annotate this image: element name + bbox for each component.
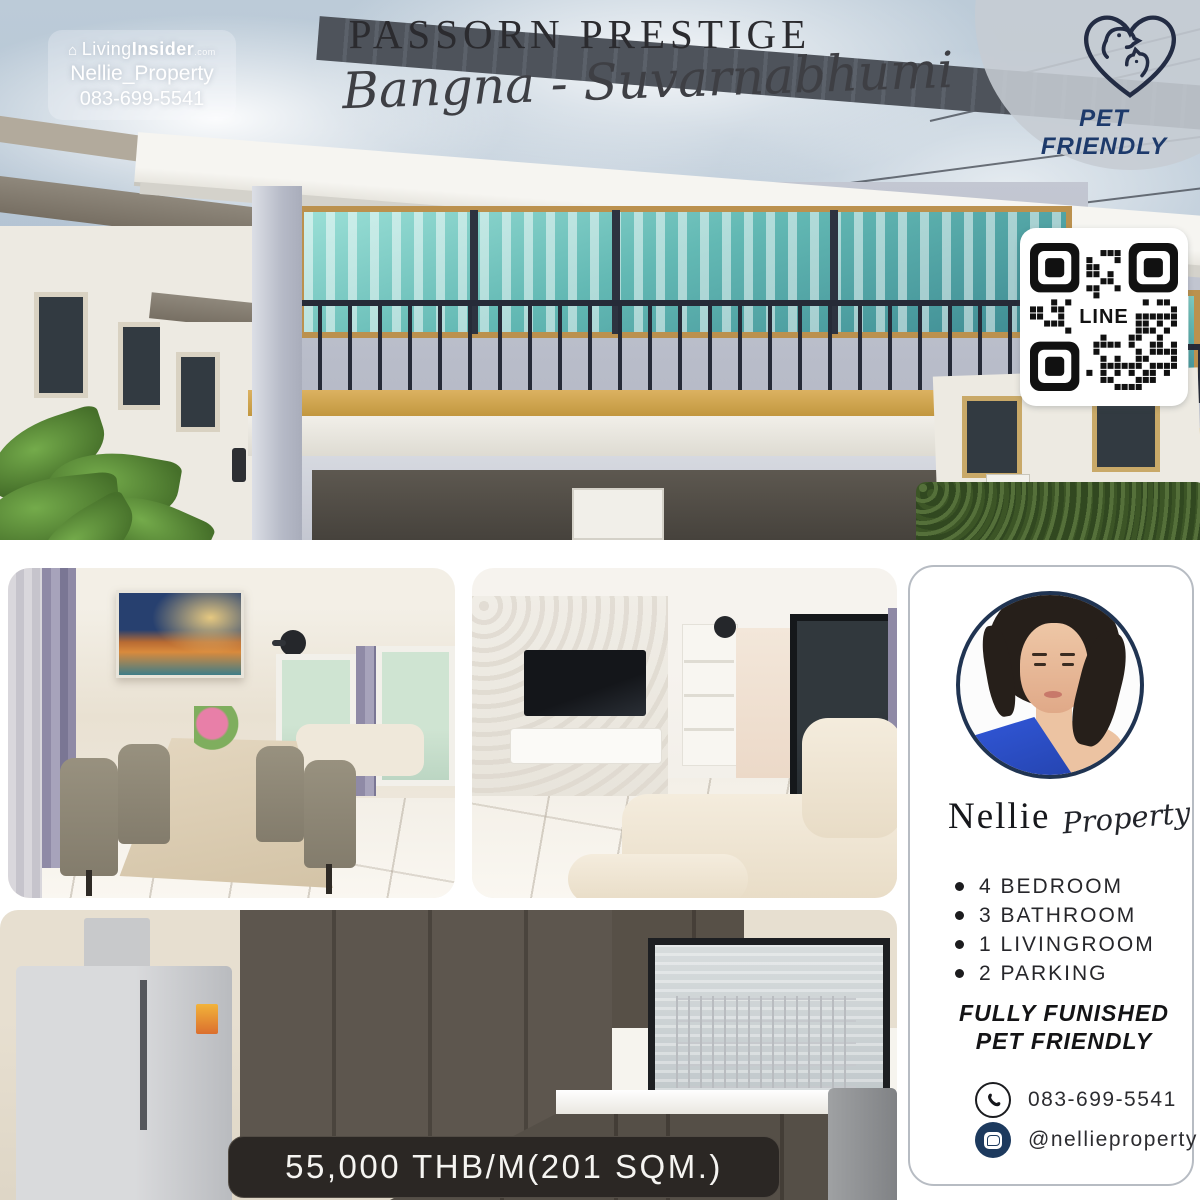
house-pillar bbox=[252, 186, 302, 540]
avatar-lips bbox=[1044, 691, 1062, 698]
dog-cat-heart-icon bbox=[1075, 8, 1185, 104]
agent-card: Nellie Property 4 BEDROOM 3 BATHROOM 1 L… bbox=[908, 565, 1194, 1186]
avatar-eye bbox=[1034, 663, 1046, 666]
line-contact: @nellieproperty bbox=[975, 1122, 1198, 1158]
phone-icon bbox=[975, 1082, 1011, 1118]
agent-name-primary: Nellie bbox=[948, 795, 1050, 838]
shelf-line bbox=[684, 728, 734, 731]
highlight-line: FULLY FUNISHED bbox=[936, 999, 1192, 1027]
shelf-line bbox=[684, 660, 734, 663]
washing-machine bbox=[828, 1088, 897, 1200]
phone-contact: 083-699-5541 bbox=[975, 1082, 1198, 1118]
dining-chair bbox=[118, 744, 170, 844]
highlight-line: PET FRIENDLY bbox=[936, 1027, 1192, 1055]
agent-name: Nellie Property bbox=[910, 795, 1192, 838]
neighbor-window bbox=[118, 322, 166, 410]
highlight-block: FULLY FUNISHED PET FRIENDLY bbox=[910, 999, 1192, 1055]
dining-room-photo bbox=[8, 568, 455, 898]
feature-item: 2 PARKING bbox=[955, 959, 1155, 988]
brand-phone: 083-699-5541 bbox=[48, 88, 236, 111]
brand-badge: ⌂LivingInsider.com Nellie_Property 083-6… bbox=[48, 30, 236, 120]
neighbor-window bbox=[34, 292, 88, 398]
dining-chair bbox=[256, 746, 304, 842]
bullet-dot bbox=[955, 882, 964, 891]
living-room-photo bbox=[472, 568, 897, 898]
fan-blade bbox=[272, 640, 286, 646]
chair-leg bbox=[86, 870, 92, 896]
avatar-eye bbox=[1062, 663, 1074, 666]
contact-block: 083-699-5541 @nellieproperty bbox=[975, 1082, 1198, 1162]
avatar-brow bbox=[1032, 653, 1047, 656]
price-banner: 55,000 THB/M(201 SQM.) bbox=[228, 1136, 780, 1198]
wall-lamp bbox=[232, 448, 246, 482]
chair-leg bbox=[326, 864, 332, 894]
avatar-brow bbox=[1060, 653, 1075, 656]
contact-line-id: @nellieproperty bbox=[1028, 1128, 1198, 1152]
feature-item: 3 BATHROOM bbox=[955, 901, 1155, 930]
dish-rack bbox=[676, 996, 856, 1088]
tv bbox=[524, 650, 646, 716]
line-qr-code: LINE bbox=[1020, 228, 1188, 406]
hedge bbox=[916, 482, 1200, 540]
flower-vase bbox=[194, 706, 246, 750]
brand-logo: ⌂LivingInsider.com bbox=[48, 39, 236, 60]
agent-avatar bbox=[956, 591, 1144, 779]
hero-house-photo: PET FRIENDLY ⌂LivingInsider.com Nellie_P… bbox=[0, 0, 1200, 540]
price-text: 55,000 THB/M(201 SQM.) bbox=[285, 1148, 723, 1186]
hallway bbox=[736, 628, 798, 778]
refrigerator bbox=[16, 966, 232, 1200]
qr-line-label: LINE bbox=[1020, 228, 1188, 406]
sofa-ottoman bbox=[568, 854, 748, 898]
neighbor-window bbox=[176, 352, 220, 432]
dining-chair bbox=[60, 758, 118, 876]
wall-box bbox=[84, 918, 150, 970]
fridge-handle bbox=[140, 980, 147, 1130]
agent-name-secondary: Property bbox=[1061, 795, 1192, 840]
feature-item: 1 LIVINGROOM bbox=[955, 930, 1155, 959]
listing-title-block: PASSORN PRESTIGE Bangna - Suvarnabhumi bbox=[290, 10, 870, 112]
feature-list: 4 BEDROOM 3 BATHROOM 1 LIVINGROOM 2 PARK… bbox=[955, 872, 1155, 988]
flyer-canvas: PET FRIENDLY ⌂LivingInsider.com Nellie_P… bbox=[0, 0, 1200, 1200]
bullet-dot bbox=[955, 911, 964, 920]
contact-phone-number: 083-699-5541 bbox=[1028, 1088, 1177, 1112]
bullet-dot bbox=[955, 940, 964, 949]
feature-item: 4 BEDROOM bbox=[955, 872, 1155, 901]
wall-painting bbox=[116, 590, 244, 678]
house-icon: ⌂ bbox=[68, 42, 78, 59]
bullet-dot bbox=[955, 969, 964, 978]
pet-friendly-label: PET FRIENDLY bbox=[1018, 105, 1190, 161]
brand-agent-name: Nellie_Property bbox=[48, 62, 236, 86]
line-icon bbox=[975, 1122, 1011, 1158]
dining-chair bbox=[304, 760, 356, 868]
energy-label bbox=[196, 1004, 218, 1034]
wall-fan bbox=[714, 616, 736, 638]
tv-cabinet bbox=[510, 728, 662, 764]
shelf-line bbox=[684, 694, 734, 697]
front-door bbox=[572, 488, 664, 540]
sheer-curtain bbox=[8, 568, 42, 898]
sofa-backrest bbox=[802, 718, 897, 838]
neighbor-window bbox=[962, 396, 1022, 478]
